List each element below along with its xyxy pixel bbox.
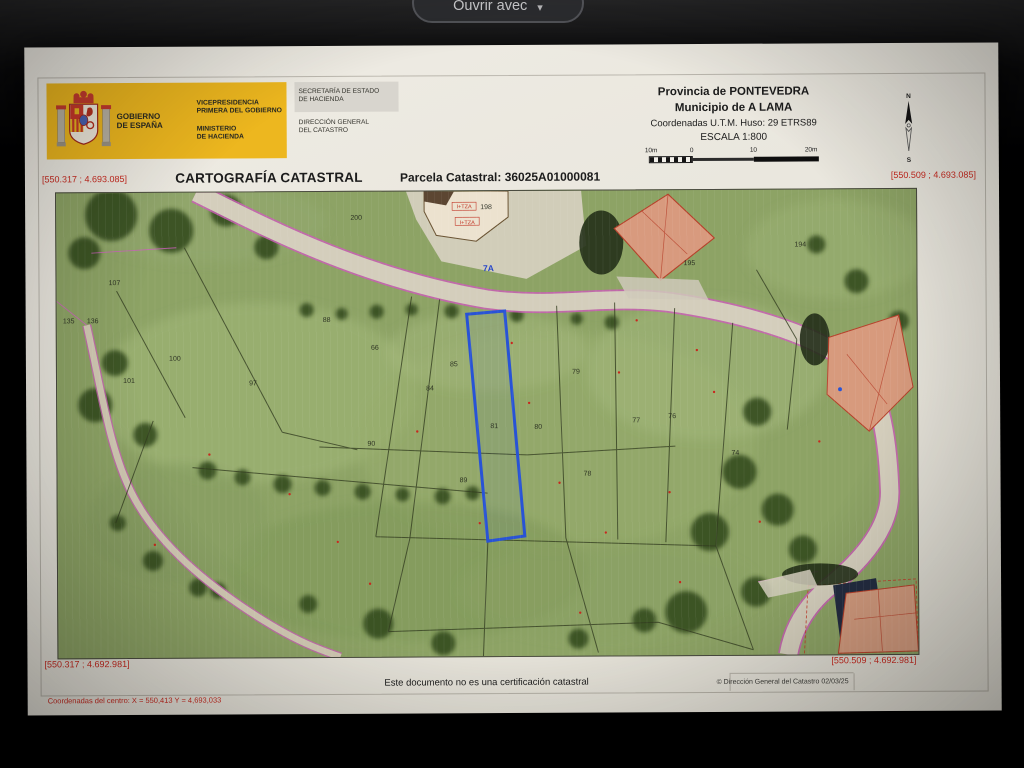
secretary-text: SECRETARÍA DE ESTADO DE HACIENDA DIRECCI…: [294, 82, 398, 159]
svg-text:101: 101: [123, 378, 135, 385]
corner-coordinate-bottom-right: [550.509 ; 4.692.981]: [764, 655, 916, 666]
north-arrow-icon: N S: [901, 93, 917, 164]
corner-coordinate-top-left: [550.317 ; 4.693.085]: [42, 174, 127, 184]
svg-text:85: 85: [450, 361, 458, 368]
copyright-text: © Dirección General del Catastro 02/03/2…: [649, 678, 849, 686]
svg-text:80: 80: [534, 424, 542, 431]
svg-text:136: 136: [87, 318, 99, 325]
svg-text:79: 79: [572, 369, 580, 376]
spain-coat-of-arms-icon: [54, 88, 112, 154]
svg-text:100: 100: [169, 356, 181, 363]
svg-text:77: 77: [632, 417, 640, 424]
svg-text:194: 194: [794, 241, 806, 248]
svg-text:89: 89: [460, 477, 468, 484]
corner-coordinate-top-right: [550.509 ; 4.693.085]: [824, 170, 976, 181]
map-header-info: Provincia de PONTEVEDRA Municipio de A L…: [613, 83, 853, 163]
svg-text:88: 88: [323, 317, 331, 324]
corner-coordinate-bottom-left: [550.317 ; 4.692.981]: [44, 659, 129, 669]
scale-tick: 10m: [645, 147, 658, 154]
viewer-topbar: Ouvrir avec ▾: [0, 0, 1024, 38]
cadastral-map: 2001981951941071351361001019788669085848…: [55, 188, 919, 660]
photo-background: Ouvrir avec ▾: [0, 0, 1024, 768]
gobierno-text: GOBIERNO DE ESPAÑA: [117, 111, 183, 130]
svg-text:198: 198: [480, 204, 492, 211]
province-label: Provincia de PONTEVEDRA: [613, 83, 853, 100]
svg-text:107: 107: [109, 280, 121, 287]
open-with-label: Ouvrir avec: [453, 0, 527, 14]
svg-text:I+TZA: I+TZA: [457, 204, 472, 210]
svg-text:84: 84: [426, 385, 434, 392]
svg-text:78: 78: [584, 471, 592, 478]
gobierno-logo-band: GOBIERNO DE ESPAÑA VICEPRESIDENCIA PRIME…: [46, 82, 286, 159]
municipality-label: Municipio de A LAMA: [614, 99, 854, 116]
document-title: CARTOGRAFÍA CATASTRAL: [164, 170, 374, 186]
ministry-text: VICEPRESIDENCIA PRIMERA DEL GOBIERNO MIN…: [197, 99, 283, 141]
svg-text:7A: 7A: [483, 263, 494, 273]
government-header: GOBIERNO DE ESPAÑA VICEPRESIDENCIA PRIME…: [46, 82, 398, 160]
svg-text:81: 81: [490, 423, 498, 430]
scale-label: ESCALA 1:800: [614, 130, 854, 145]
svg-text:200: 200: [350, 215, 362, 222]
svg-text:195: 195: [684, 260, 696, 267]
disclaimer-text: Este documento no es una certificación c…: [287, 676, 687, 689]
svg-text:90: 90: [367, 441, 375, 448]
chevron-down-icon: ▾: [537, 1, 543, 14]
center-coordinates-text: Coordenadas del centro: X = 550,413 Y = …: [48, 696, 222, 706]
open-with-button[interactable]: Ouvrir avec ▾: [412, 0, 584, 23]
svg-text:66: 66: [371, 345, 379, 352]
svg-text:74: 74: [731, 450, 739, 457]
parcel-reference: Parcela Catastral: 36025A01000081: [400, 170, 600, 185]
svg-text:I+TZA: I+TZA: [460, 220, 475, 226]
scale-tick: 20m: [805, 146, 818, 153]
scale-tick: 10: [750, 147, 757, 154]
utm-label: Coordenadas U.T.M. Huso: 29 ETRS89: [614, 115, 854, 131]
scale-tick: 0: [690, 147, 694, 154]
cadastral-document: GOBIERNO DE ESPAÑA VICEPRESIDENCIA PRIME…: [24, 42, 1001, 715]
svg-text:97: 97: [249, 380, 257, 387]
scale-bar: 10m 0 10 20m: [649, 146, 819, 163]
svg-text:76: 76: [668, 413, 676, 420]
svg-text:135: 135: [63, 318, 75, 325]
